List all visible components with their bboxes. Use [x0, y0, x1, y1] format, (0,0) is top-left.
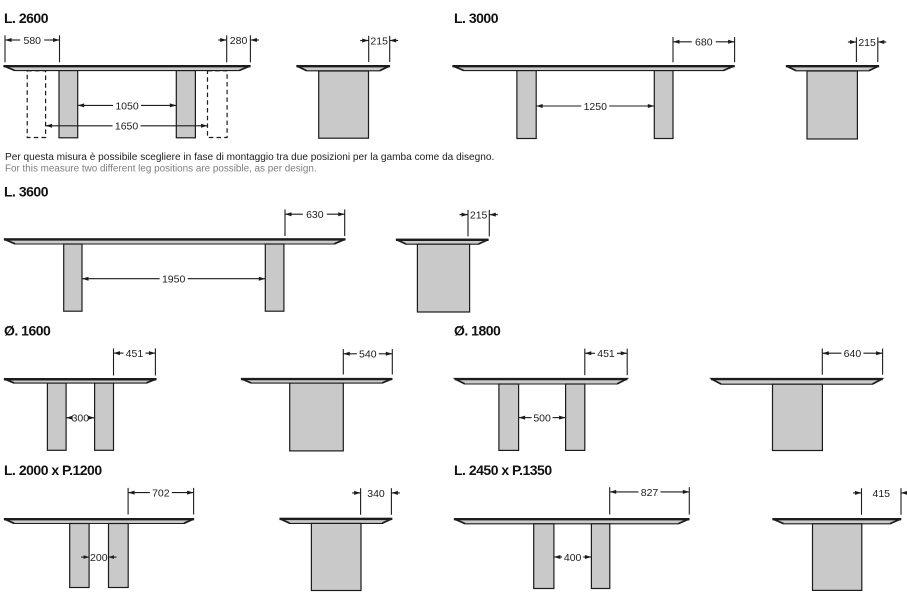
svg-text:1650: 1650 [115, 121, 139, 133]
svg-text:500: 500 [533, 413, 551, 425]
svg-text:215: 215 [858, 37, 876, 49]
svg-text:702: 702 [152, 488, 170, 500]
svg-text:630: 630 [306, 209, 324, 221]
svg-text:1950: 1950 [162, 274, 186, 286]
svg-text:580: 580 [23, 35, 41, 47]
svg-text:680: 680 [695, 37, 713, 49]
svg-text:400: 400 [564, 552, 582, 564]
svg-text:827: 827 [641, 487, 659, 499]
svg-text:Ø. 1800: Ø. 1800 [454, 323, 501, 339]
svg-text:415: 415 [872, 488, 890, 500]
svg-text:L. 3000: L. 3000 [454, 10, 499, 26]
svg-text:L. 2600: L. 2600 [4, 10, 49, 26]
svg-text:1050: 1050 [115, 100, 139, 112]
svg-text:540: 540 [359, 349, 377, 361]
svg-text:451: 451 [126, 348, 144, 360]
svg-text:Ø. 1600: Ø. 1600 [4, 323, 51, 339]
svg-text:215: 215 [470, 210, 488, 222]
svg-text:640: 640 [844, 348, 862, 360]
svg-text:451: 451 [597, 348, 615, 360]
svg-text:340: 340 [367, 488, 385, 500]
svg-text:300: 300 [72, 413, 90, 425]
svg-text:215: 215 [370, 35, 388, 47]
svg-text:280: 280 [230, 35, 248, 47]
svg-text:For this measure two different: For this measure two different leg posit… [5, 163, 317, 174]
svg-text:L. 3600: L. 3600 [4, 184, 49, 200]
svg-text:L. 2450 x P.1350: L. 2450 x P.1350 [454, 462, 552, 478]
svg-text:L. 2000 x P.1200: L. 2000 x P.1200 [4, 462, 102, 478]
svg-text:1250: 1250 [584, 101, 608, 113]
svg-text:Per questa misura è possibile: Per questa misura è possibile scegliere … [5, 152, 494, 163]
svg-text:200: 200 [90, 552, 108, 564]
